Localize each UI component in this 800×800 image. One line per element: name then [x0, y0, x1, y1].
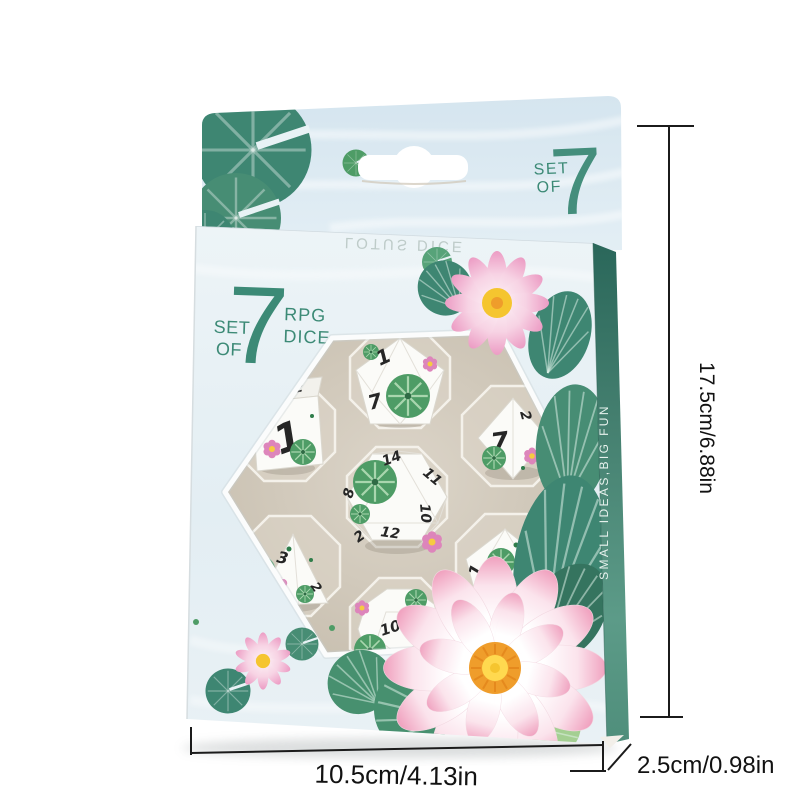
die-d20-number-4: 12	[379, 524, 401, 543]
dice-box-photo: SET OF 7 LOTUS DICE SET OF	[0, 0, 800, 800]
die-d20-number-3: 10	[416, 503, 434, 524]
front-badge-count: 7	[225, 263, 290, 388]
height-dimension-label: 17.5cm/6.88in	[695, 362, 718, 494]
depth-dimension-label: 2.5cm/0.98in	[637, 752, 774, 779]
product-image: SET OF 7 LOTUS DICE SET OF	[0, 0, 800, 800]
spine-slogan: SMALL IDEAS,BIG FUN	[597, 404, 611, 580]
back-badge-count: 7	[547, 128, 604, 236]
width-dimension-label: 10.5cm/4.13in	[314, 759, 478, 792]
front-badge-rpg: RPG	[284, 304, 327, 325]
box-front-panel: LOTUS DICE SET OF 7 RPG DICE	[146, 226, 625, 780]
